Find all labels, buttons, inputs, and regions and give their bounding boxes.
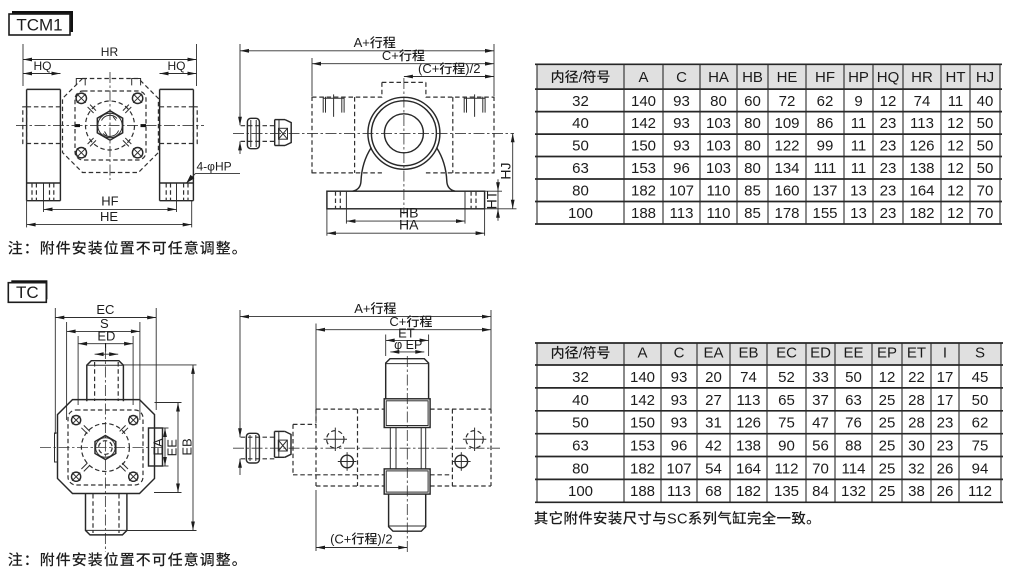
svg-text:63: 63 (572, 160, 589, 177)
svg-text:EB: EB (179, 438, 194, 455)
svg-text:50: 50 (572, 415, 589, 432)
svg-text:142: 142 (631, 115, 656, 132)
svg-text:EC: EC (96, 302, 114, 317)
svg-text:50: 50 (845, 369, 862, 386)
svg-text:45: 45 (972, 369, 989, 386)
svg-text:132: 132 (841, 483, 866, 500)
svg-text:93: 93 (673, 115, 690, 132)
svg-text:103: 103 (706, 115, 731, 132)
svg-text:26: 26 (937, 483, 954, 500)
svg-text:93: 93 (673, 138, 690, 155)
svg-text:C: C (674, 345, 685, 362)
svg-text:ET: ET (907, 345, 926, 362)
svg-text:38: 38 (908, 483, 925, 500)
svg-text:40: 40 (572, 115, 589, 132)
svg-text:A: A (637, 345, 647, 362)
svg-text:23: 23 (880, 205, 897, 222)
svg-text:150: 150 (630, 415, 655, 432)
svg-text:80: 80 (744, 138, 761, 155)
svg-text:A+: A+ (354, 35, 370, 50)
svg-text:80: 80 (572, 183, 589, 200)
svg-text:12: 12 (947, 183, 964, 200)
svg-text:109: 109 (774, 115, 799, 132)
svg-text:112: 112 (775, 460, 799, 477)
svg-text:96: 96 (673, 160, 690, 177)
svg-text:94: 94 (972, 460, 989, 477)
svg-text:13: 13 (850, 183, 867, 200)
svg-text:126: 126 (909, 138, 934, 155)
svg-text:17: 17 (937, 392, 954, 409)
svg-text:EC: EC (776, 345, 797, 362)
svg-text:HJ: HJ (498, 162, 514, 179)
svg-text:122: 122 (774, 138, 799, 155)
svg-text:103: 103 (706, 160, 731, 177)
svg-text:27: 27 (705, 392, 722, 409)
svg-text:12: 12 (947, 160, 964, 177)
svg-text:25: 25 (879, 460, 896, 477)
svg-text:(C+: (C+ (418, 61, 439, 76)
svg-text:111: 111 (814, 160, 837, 177)
svg-text:150: 150 (631, 138, 656, 155)
svg-text:56: 56 (812, 438, 829, 455)
svg-text:HF: HF (815, 69, 835, 86)
svg-text:A: A (638, 69, 648, 86)
svg-text:25: 25 (879, 415, 896, 432)
svg-text:113: 113 (670, 205, 694, 222)
svg-text:112: 112 (968, 483, 992, 500)
svg-text:EA: EA (703, 345, 723, 362)
svg-text:HT: HT (484, 190, 500, 209)
svg-text:EB: EB (738, 345, 758, 362)
svg-text:50: 50 (977, 160, 994, 177)
svg-text:188: 188 (630, 483, 655, 500)
svg-text:/: / (579, 345, 583, 361)
svg-text:80: 80 (572, 460, 589, 477)
svg-text:65: 65 (778, 392, 795, 409)
svg-text:23: 23 (880, 115, 897, 132)
svg-text:47: 47 (812, 415, 829, 432)
svg-text:28: 28 (908, 415, 925, 432)
svg-text:140: 140 (630, 369, 655, 386)
svg-text:/: / (579, 69, 583, 85)
svg-text:54: 54 (705, 460, 722, 477)
svg-text:I: I (943, 345, 947, 362)
svg-text:12: 12 (880, 93, 897, 110)
svg-text:32: 32 (572, 93, 589, 110)
svg-text:85: 85 (744, 183, 761, 200)
svg-text:62: 62 (817, 93, 834, 110)
svg-text:103: 103 (706, 138, 731, 155)
svg-text:S: S (975, 345, 985, 362)
svg-text:EA: EA (150, 438, 165, 456)
svg-text:HR: HR (101, 45, 119, 59)
svg-text:86: 86 (817, 115, 834, 132)
svg-text:32: 32 (572, 369, 589, 386)
svg-text:62: 62 (972, 415, 989, 432)
svg-text:HT: HT (946, 69, 966, 86)
svg-text:28: 28 (908, 392, 925, 409)
svg-text:23: 23 (937, 438, 954, 455)
svg-text:138: 138 (736, 438, 761, 455)
svg-text:23: 23 (880, 183, 897, 200)
svg-text:A+: A+ (354, 301, 370, 316)
svg-text:70: 70 (812, 460, 829, 477)
svg-text:30: 30 (908, 438, 925, 455)
svg-text:182: 182 (736, 483, 761, 500)
svg-text:135: 135 (774, 483, 799, 500)
svg-text:93: 93 (671, 369, 688, 386)
svg-text:188: 188 (631, 205, 656, 222)
svg-text:40: 40 (977, 93, 994, 110)
svg-text:ED: ED (810, 345, 831, 362)
svg-text:100: 100 (568, 205, 593, 222)
svg-text:25: 25 (879, 483, 896, 500)
svg-text:23: 23 (937, 415, 954, 432)
svg-text:40: 40 (572, 392, 589, 409)
svg-text:HJ: HJ (976, 69, 994, 86)
svg-text:137: 137 (812, 183, 837, 200)
svg-text:182: 182 (631, 183, 656, 200)
svg-text:80: 80 (744, 115, 761, 132)
svg-text:107: 107 (666, 460, 691, 477)
svg-text:164: 164 (736, 460, 761, 477)
svg-text:153: 153 (630, 438, 655, 455)
svg-text:)/2: )/2 (465, 61, 480, 76)
svg-text:23: 23 (880, 160, 897, 177)
svg-text:74: 74 (914, 93, 931, 110)
svg-text:HR: HR (911, 69, 933, 86)
svg-text:11: 11 (851, 138, 867, 155)
svg-text:50: 50 (977, 115, 994, 132)
svg-text:90: 90 (778, 438, 795, 455)
svg-text:113: 113 (667, 483, 691, 500)
svg-text:134: 134 (774, 160, 799, 177)
svg-text:113: 113 (737, 392, 761, 409)
svg-text:80: 80 (710, 93, 727, 110)
svg-text:85: 85 (744, 205, 761, 222)
svg-text:HA: HA (708, 69, 729, 86)
svg-text:17: 17 (937, 369, 954, 386)
svg-text:11: 11 (948, 93, 964, 110)
svg-text:EP: EP (877, 345, 897, 362)
svg-text:12: 12 (947, 138, 964, 155)
svg-text:74: 74 (740, 369, 757, 386)
svg-text:99: 99 (817, 138, 834, 155)
svg-text:42: 42 (705, 438, 722, 455)
svg-text:88: 88 (845, 438, 862, 455)
svg-text:22: 22 (908, 369, 925, 386)
svg-text:72: 72 (779, 93, 796, 110)
svg-text:142: 142 (630, 392, 655, 409)
svg-text:4-φHP: 4-φHP (197, 160, 232, 174)
svg-text:31: 31 (705, 415, 722, 432)
svg-text:12: 12 (879, 369, 896, 386)
svg-text:182: 182 (630, 460, 655, 477)
svg-text:164: 164 (909, 183, 934, 200)
svg-text:TCM1: TCM1 (16, 16, 62, 35)
svg-text:20: 20 (705, 369, 722, 386)
svg-text:50: 50 (977, 138, 994, 155)
svg-text:)/2: )/2 (377, 531, 392, 546)
svg-text:25: 25 (879, 438, 896, 455)
svg-text:160: 160 (774, 183, 799, 200)
svg-text:13: 13 (850, 205, 867, 222)
svg-text:EE: EE (164, 439, 179, 457)
svg-text:68: 68 (705, 483, 722, 500)
svg-text:96: 96 (671, 438, 688, 455)
svg-text:HA: HA (399, 217, 419, 233)
svg-text:(C+: (C+ (330, 531, 351, 546)
svg-text:114: 114 (842, 460, 866, 477)
svg-text:25: 25 (879, 392, 896, 409)
svg-text:75: 75 (972, 438, 989, 455)
svg-text:SC: SC (667, 511, 688, 527)
svg-text:26: 26 (937, 460, 954, 477)
svg-text:C: C (676, 69, 687, 86)
svg-text:φ EP: φ EP (394, 338, 422, 352)
svg-text:100: 100 (568, 483, 593, 500)
svg-text:126: 126 (736, 415, 761, 432)
svg-text:178: 178 (774, 205, 799, 222)
svg-text:HQ: HQ (168, 59, 186, 73)
svg-text:60: 60 (744, 93, 761, 110)
svg-text:C+: C+ (382, 48, 399, 63)
svg-text:155: 155 (812, 205, 837, 222)
svg-text:63: 63 (845, 392, 862, 409)
svg-text:HE: HE (777, 69, 798, 86)
svg-text:52: 52 (778, 369, 795, 386)
svg-text:33: 33 (812, 369, 829, 386)
svg-text:138: 138 (909, 160, 934, 177)
svg-text:TC: TC (16, 283, 39, 302)
svg-text:113: 113 (910, 115, 934, 132)
svg-text:93: 93 (671, 415, 688, 432)
svg-text:50: 50 (572, 138, 589, 155)
svg-text:12: 12 (947, 115, 964, 132)
svg-text:70: 70 (977, 183, 994, 200)
svg-text:75: 75 (778, 415, 795, 432)
svg-text:HQ: HQ (34, 59, 52, 73)
svg-text:80: 80 (744, 160, 761, 177)
svg-text:23: 23 (880, 138, 897, 155)
svg-text:110: 110 (707, 205, 731, 222)
svg-text:93: 93 (673, 93, 690, 110)
svg-text:9: 9 (854, 93, 862, 110)
svg-text:70: 70 (977, 205, 994, 222)
svg-text:140: 140 (631, 93, 656, 110)
svg-text:84: 84 (812, 483, 829, 500)
svg-text:76: 76 (845, 415, 862, 432)
svg-text:110: 110 (707, 183, 731, 200)
svg-text:EE: EE (843, 345, 863, 362)
svg-text:HP: HP (848, 69, 869, 86)
svg-text:12: 12 (947, 205, 964, 222)
svg-text:HE: HE (100, 209, 118, 224)
svg-text:HQ: HQ (877, 69, 900, 86)
svg-text:11: 11 (851, 160, 867, 177)
svg-text:182: 182 (909, 205, 934, 222)
svg-text:93: 93 (671, 392, 688, 409)
svg-text:107: 107 (669, 183, 694, 200)
svg-text:HB: HB (742, 69, 763, 86)
svg-text:HF: HF (101, 194, 118, 209)
svg-text:32: 32 (908, 460, 925, 477)
svg-text:50: 50 (972, 392, 989, 409)
svg-text:153: 153 (631, 160, 656, 177)
svg-text:11: 11 (851, 115, 867, 132)
svg-text:63: 63 (572, 438, 589, 455)
svg-text:37: 37 (812, 392, 829, 409)
